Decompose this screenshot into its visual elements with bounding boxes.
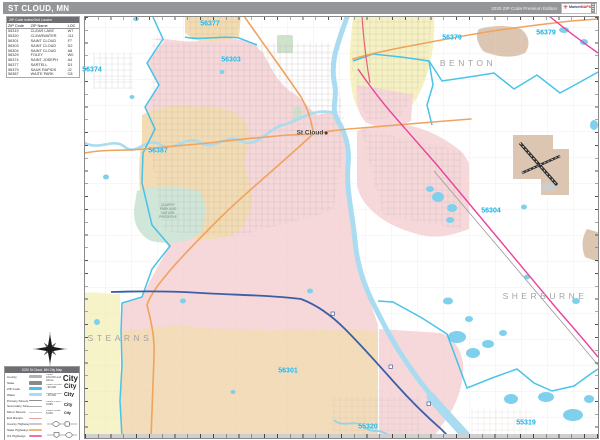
legend-item-label: US Highways <box>7 434 29 438</box>
legend-city-class-label: Cities 10,000 - 49,999 <box>46 393 63 399</box>
logo-star-icon: ✳ <box>563 5 568 11</box>
legend-highway-shields <box>46 418 78 440</box>
legend-city-class-label: Cities Under 5,000 <box>46 410 63 416</box>
legend-city-sample: City <box>63 374 78 383</box>
zip-table-row: 56379SAUK RAPIDSJ2 <box>7 67 79 72</box>
legend-item-sample <box>29 375 42 378</box>
legend-city-class: Cities Under 5,000City <box>46 408 78 417</box>
zip-table-row: 56303SAINT CLOUDD2 <box>7 43 79 48</box>
map-canvas <box>84 16 599 439</box>
map-title: ST CLOUD, MN <box>8 4 69 13</box>
map-sheet: ST CLOUD, MN 2020 ZIP Code Premium Editi… <box>0 0 600 440</box>
zip-table-row: 56301SAINT CLOUDF7 <box>7 39 79 44</box>
legend-item-sample <box>29 400 42 402</box>
legend-city-class-label: Cities 100,000 and Above <box>46 374 62 382</box>
legend-item-sample <box>29 423 42 425</box>
publisher-logo: ✳ MarketMAPS <box>561 3 597 14</box>
legend-item-sample <box>29 435 42 437</box>
logo-badge <box>591 3 595 13</box>
legend-city-class: Cities 100,000 and AboveCity <box>46 374 78 383</box>
legend-item-label: Water <box>7 393 29 397</box>
zip-table-row: 56304SAINT CLOUDA8 <box>7 48 79 53</box>
legend-item-sample <box>29 418 42 419</box>
legend-city-class-label: Cities 50,000 - 99,999 <box>46 384 63 390</box>
title-bar: ST CLOUD, MN 2020 ZIP Code Premium Editi… <box>3 2 597 14</box>
compass-rose <box>32 331 68 367</box>
zip-table-row: 56374SAINT JOSEPHA4 <box>7 58 79 63</box>
zip-table-row: 55319CLEAR LAKEW7 <box>7 29 79 34</box>
legend-city-sample: City <box>64 411 71 415</box>
zip-table-row: 55320CLEARWATERJ11 <box>7 34 79 39</box>
map-graphic <box>85 17 598 438</box>
legend-city-class-label: Cities 5,000 - 9,999 <box>46 401 63 407</box>
legend-city-sample: City <box>64 392 74 398</box>
logo-brand-text: MarketMAPS <box>569 6 591 10</box>
legend-city-class: Cities 50,000 - 99,999City <box>46 383 78 392</box>
zip-table-row: 56329FOLEYW0 <box>7 53 79 58</box>
legend-item-label: State Highways <box>7 428 29 432</box>
legend-city-class: Cities 10,000 - 49,999City <box>46 391 78 400</box>
legend-item-label: County <box>7 375 29 379</box>
legend-city-sample: City <box>64 383 76 390</box>
map-legend: 2020 St Cloud, MN City Map CountyStateZI… <box>4 366 80 440</box>
legend-item-label: State <box>7 381 29 385</box>
left-margin-panel: ZIP Code Index/Grid Locator ZIP CodeZIP … <box>0 14 80 440</box>
zip-table-row: 56387WAITE PARKC8 <box>7 72 79 77</box>
zip-table-cell: WAITE PARK <box>30 72 67 77</box>
legend-item-sample <box>29 381 42 385</box>
zip-table-cell: 56387 <box>7 72 30 77</box>
zip-table-row: 56377SARTELLD1 <box>7 62 79 67</box>
edition-label: 2020 ZIP Code Premium Edition <box>491 6 557 11</box>
legend-item-sample <box>29 406 42 407</box>
legend-item-label: Minor Streets <box>7 410 29 414</box>
legend-item-sample <box>29 393 42 396</box>
zip-table-cell: C8 <box>67 72 79 77</box>
legend-city-sample: City <box>64 402 72 407</box>
zip-code-index-table: ZIP Code Index/Grid Locator ZIP CodeZIP … <box>6 16 80 78</box>
legend-item-sample <box>29 412 42 413</box>
legend-item-label: Primary Streets <box>7 399 29 403</box>
legend-item-label: County Highways <box>7 422 29 426</box>
legend-item-label: Secondary Streets <box>7 404 29 408</box>
legend-item-sample <box>29 429 42 431</box>
legend-city-class: Cities 5,000 - 9,999City <box>46 400 78 409</box>
legend-item-label: Exit Ramps <box>7 416 29 420</box>
legend-item-sample <box>29 387 42 390</box>
legend-item-label: ZIP Code <box>7 387 29 391</box>
